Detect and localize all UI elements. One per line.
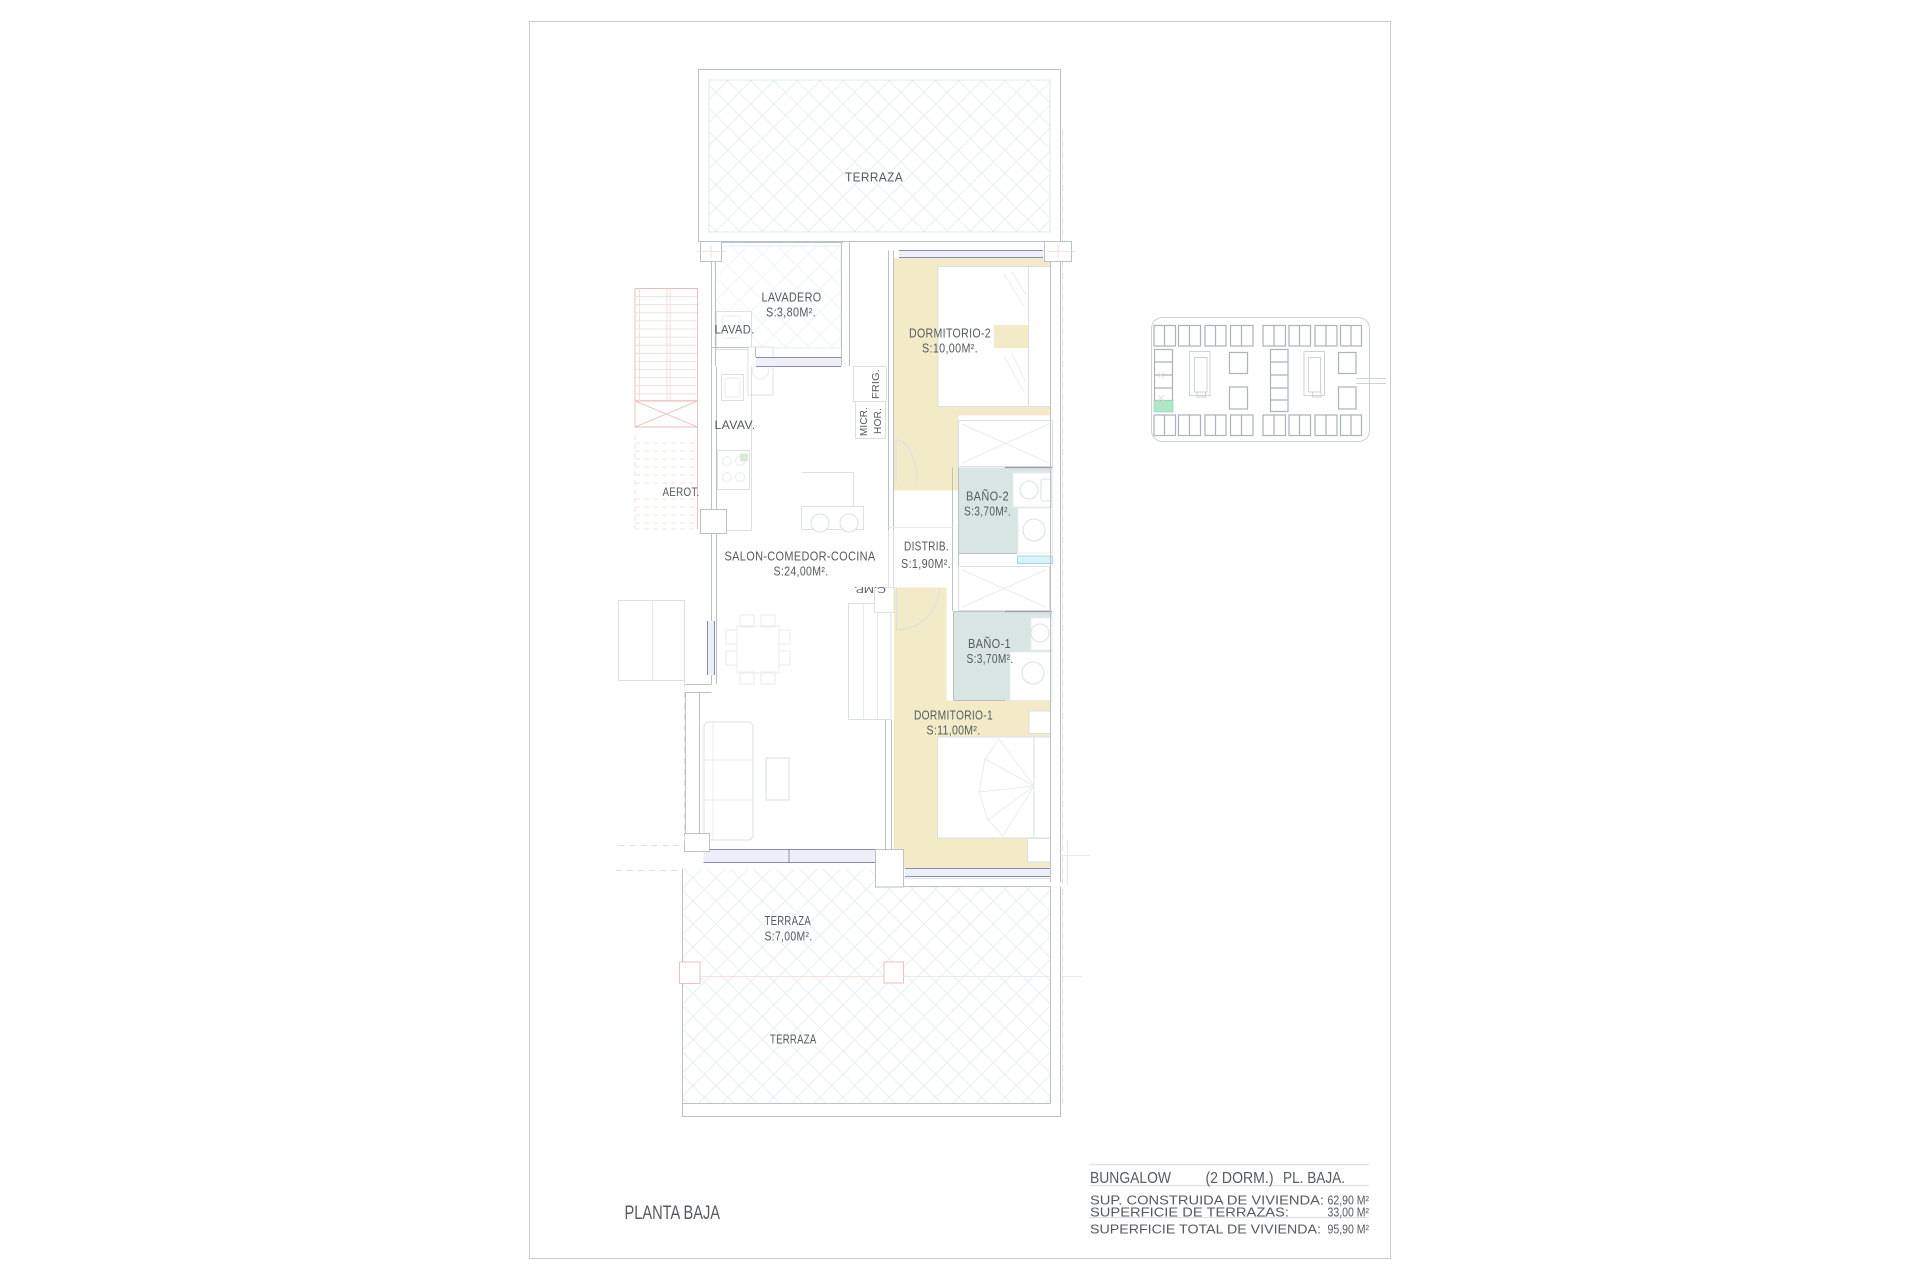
svg-text:DORMITORIO-2: DORMITORIO-2 xyxy=(909,326,991,341)
svg-text:LAVAV.: LAVAV. xyxy=(715,420,756,432)
svg-text:AEROT.: AEROT. xyxy=(663,487,700,499)
svg-text:TERRAZA: TERRAZA xyxy=(845,170,903,185)
svg-text:HOR.: HOR. xyxy=(872,408,884,434)
svg-text:SUPERFICIE TOTAL DE VIVIENDA:: SUPERFICIE TOTAL DE VIVIENDA: xyxy=(1090,1223,1321,1237)
svg-text:BUNGALOW: BUNGALOW xyxy=(1090,1170,1172,1187)
svg-text:S:7,00M².: S:7,00M². xyxy=(765,929,813,944)
svg-text:DISTRIB.: DISTRIB. xyxy=(904,539,949,554)
svg-text:95,90 M²: 95,90 M² xyxy=(1328,1223,1370,1237)
svg-text:BAÑO-2: BAÑO-2 xyxy=(966,489,1009,504)
svg-text:PLANTA BAJA: PLANTA BAJA xyxy=(625,1203,721,1224)
svg-text:S:11,00M².: S:11,00M². xyxy=(927,723,981,738)
svg-text:DORMITORIO-1: DORMITORIO-1 xyxy=(914,708,993,723)
svg-text:C.MP.: C.MP. xyxy=(854,585,886,594)
svg-text:MICR.: MICR. xyxy=(858,407,870,436)
svg-text:TERRAZA: TERRAZA xyxy=(765,913,812,928)
svg-text:PL. BAJA.: PL. BAJA. xyxy=(1283,1170,1345,1187)
svg-text:S:10,00M².: S:10,00M². xyxy=(922,341,978,356)
svg-text:33,00 M²: 33,00 M² xyxy=(1328,1206,1370,1220)
svg-text:FRIG.: FRIG. xyxy=(870,369,882,399)
svg-text:(2 DORM.): (2 DORM.) xyxy=(1206,1170,1274,1187)
svg-text:S:3,70M².: S:3,70M². xyxy=(964,504,1011,519)
svg-text:S:3,70M².: S:3,70M². xyxy=(967,651,1014,666)
svg-text:S:1,90M².: S:1,90M². xyxy=(901,556,951,571)
svg-text:S:24,00M².: S:24,00M². xyxy=(774,564,829,579)
svg-text:S:3,80M².: S:3,80M². xyxy=(766,305,816,320)
svg-text:TERRAZA: TERRAZA xyxy=(770,1032,817,1047)
svg-text:BAÑO-1: BAÑO-1 xyxy=(968,636,1011,651)
svg-text:LAVADERO: LAVADERO xyxy=(762,290,822,305)
svg-text:SALON-COMEDOR-COCINA: SALON-COMEDOR-COCINA xyxy=(725,549,876,564)
svg-text:SUPERFICIE DE TERRAZAS:: SUPERFICIE DE TERRAZAS: xyxy=(1090,1206,1289,1220)
svg-text:LAVAD.: LAVAD. xyxy=(715,325,755,337)
